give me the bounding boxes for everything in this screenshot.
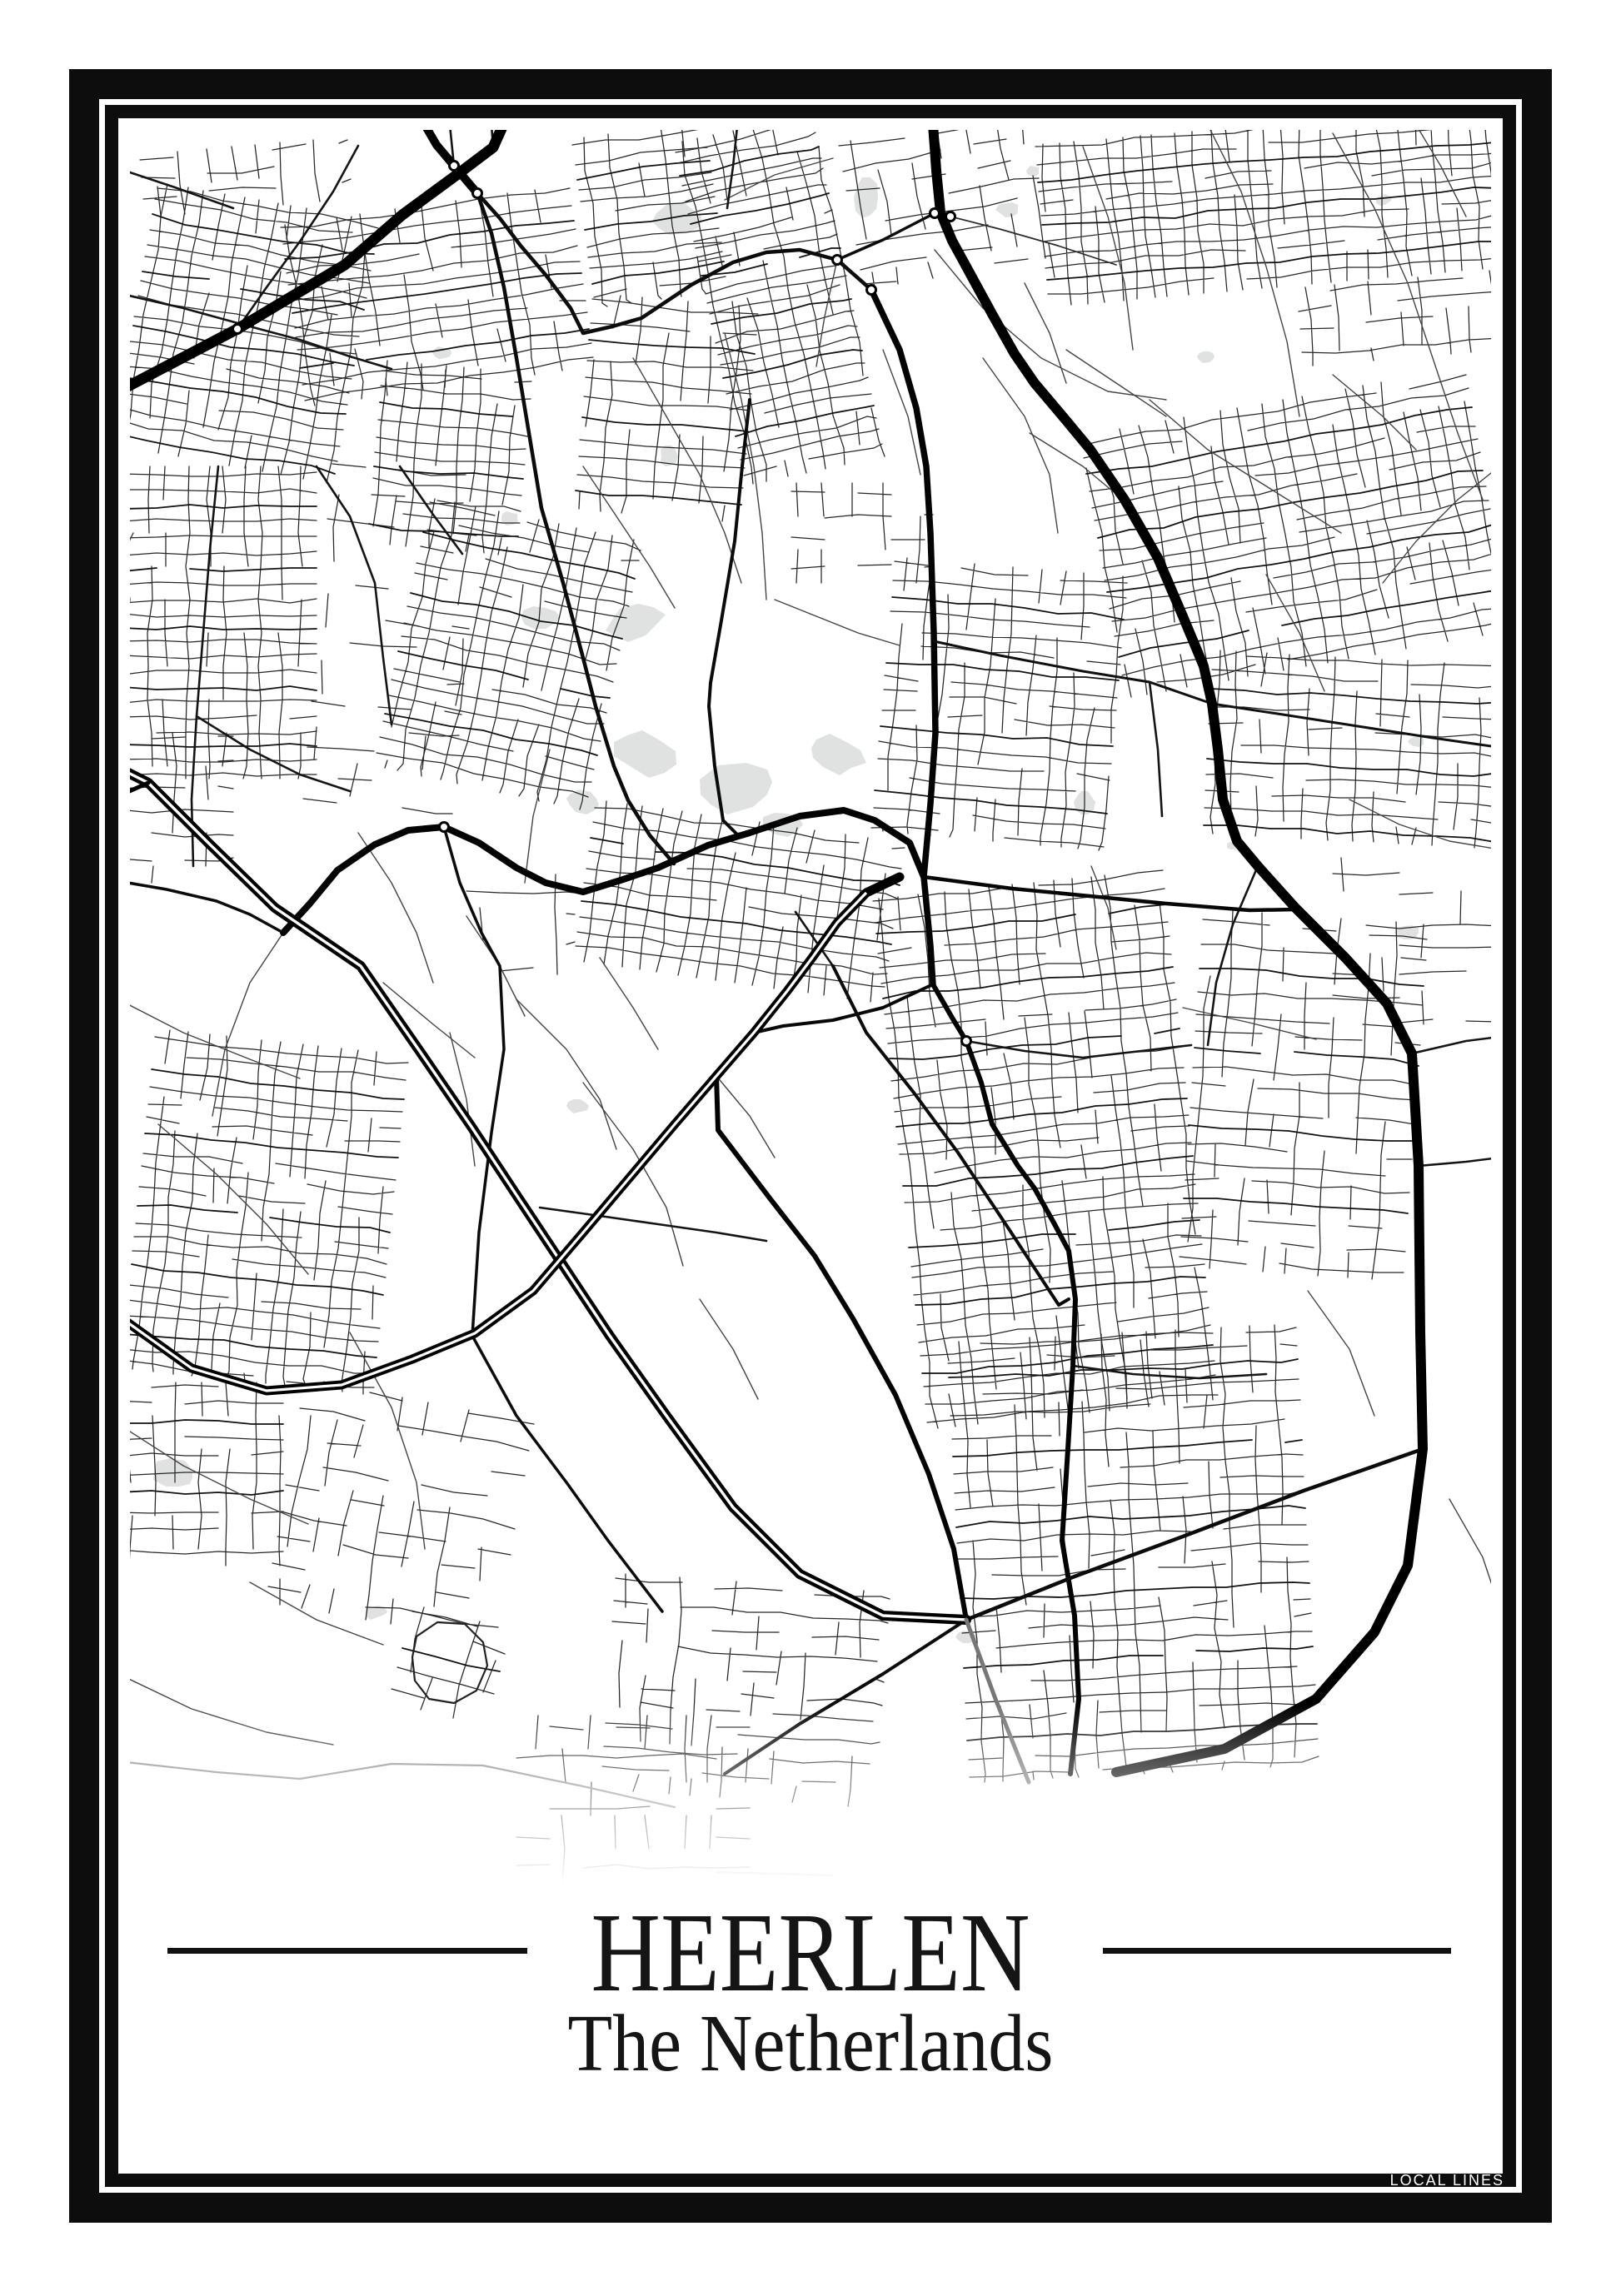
svg-text:LOCAL LINES: LOCAL LINES: [1390, 2172, 1504, 2189]
svg-text:The Netherlands: The Netherlands: [568, 1999, 1054, 2089]
svg-text:HEERLEN: HEERLEN: [591, 1890, 1030, 2015]
